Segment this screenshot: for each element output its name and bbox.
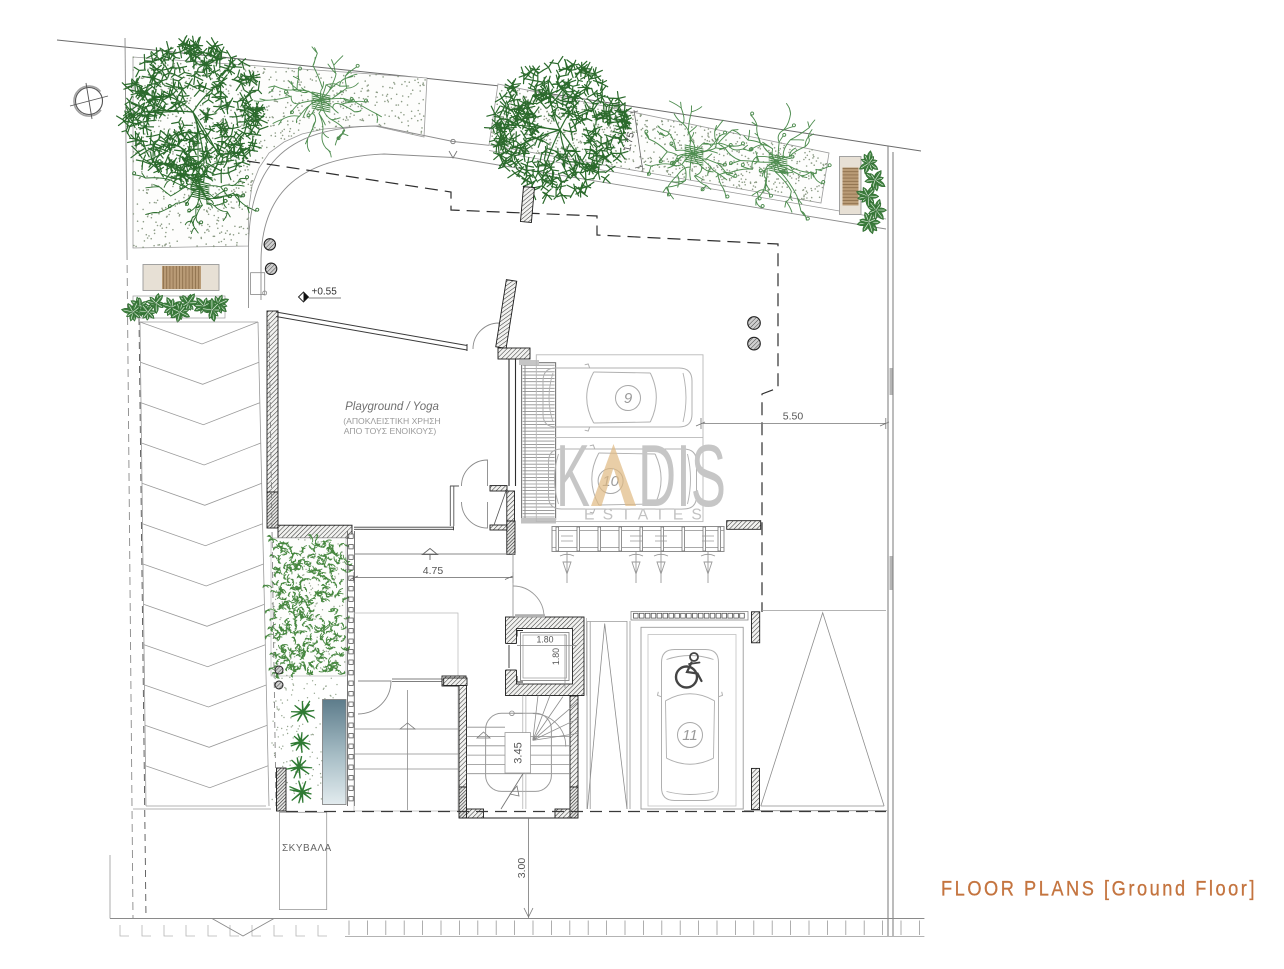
svg-text:1.80: 1.80 — [551, 648, 561, 665]
svg-text:(ΑΠΟΚΛΕΙΣΤΙΚΗ ΧΡΗΣΗ: (ΑΠΟΚΛΕΙΣΤΙΚΗ ΧΡΗΣΗ — [343, 416, 441, 426]
svg-text:4.75: 4.75 — [423, 565, 444, 577]
svg-text:FLOOR PLANS [Ground Floor]: FLOOR PLANS [Ground Floor] — [941, 877, 1257, 901]
svg-text:3.45: 3.45 — [513, 742, 525, 763]
svg-text:+0.55: +0.55 — [312, 287, 338, 298]
svg-text:5.50: 5.50 — [783, 411, 804, 423]
svg-text:ΣΚΥΒΑΛΑ: ΣΚΥΒΑΛΑ — [282, 843, 332, 854]
svg-text:1.80: 1.80 — [536, 635, 553, 645]
svg-text:3.00: 3.00 — [516, 858, 528, 879]
svg-text:ΑΠΟ ΤΟΥΣ ΕΝΟΙΚΟΥΣ): ΑΠΟ ΤΟΥΣ ΕΝΟΙΚΟΥΣ) — [344, 426, 437, 436]
svg-text:9: 9 — [624, 390, 633, 407]
svg-text:Playground / Yoga: Playground / Yoga — [345, 401, 439, 413]
svg-text:11: 11 — [682, 727, 698, 744]
svg-text:ESTATES: ESTATES — [584, 507, 710, 524]
